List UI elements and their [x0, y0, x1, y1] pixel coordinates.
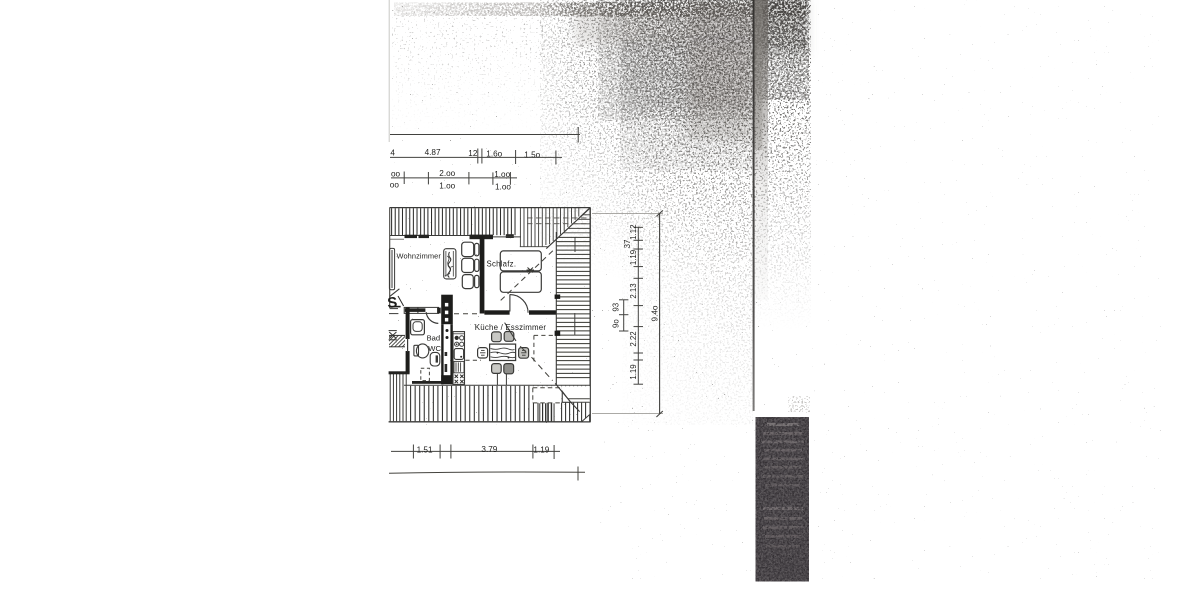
svg-text:S: S — [387, 294, 398, 312]
svg-text:1.6o: 1.6o — [486, 149, 502, 158]
svg-text:2.22: 2.22 — [629, 331, 638, 346]
svg-text:4: 4 — [390, 149, 395, 158]
svg-text:WC: WC — [428, 344, 441, 353]
svg-text:1.19: 1.19 — [629, 249, 638, 265]
svg-text:Küche / Esszimmer: Küche / Esszimmer — [475, 323, 547, 332]
svg-text:1.19: 1.19 — [629, 364, 638, 380]
svg-text:1.19: 1.19 — [533, 445, 549, 454]
svg-text:3.79: 3.79 — [481, 445, 497, 454]
svg-text:Wohnzimmer: Wohnzimmer — [397, 251, 442, 260]
svg-text:1.12: 1.12 — [629, 225, 638, 240]
svg-text:93: 93 — [612, 302, 621, 311]
svg-text:1.51: 1.51 — [417, 445, 433, 454]
svg-text:oo: oo — [391, 169, 401, 178]
svg-text:2.13: 2.13 — [629, 283, 638, 299]
svg-text:oo: oo — [390, 181, 400, 190]
svg-text:Bad: Bad — [427, 334, 441, 343]
svg-text:9.4o: 9.4o — [650, 305, 659, 321]
svg-text:37: 37 — [623, 240, 632, 249]
svg-text:2.oo: 2.oo — [439, 169, 455, 178]
svg-text:1.oo: 1.oo — [495, 183, 511, 192]
svg-text:1.oo: 1.oo — [439, 181, 455, 190]
svg-text:1.oo: 1.oo — [494, 170, 510, 179]
svg-text:4.87: 4.87 — [425, 148, 441, 157]
svg-text:Schlafz.: Schlafz. — [487, 260, 517, 269]
svg-text:1.5o: 1.5o — [524, 151, 540, 160]
svg-text:12: 12 — [468, 149, 478, 158]
svg-text:9o: 9o — [612, 319, 621, 328]
